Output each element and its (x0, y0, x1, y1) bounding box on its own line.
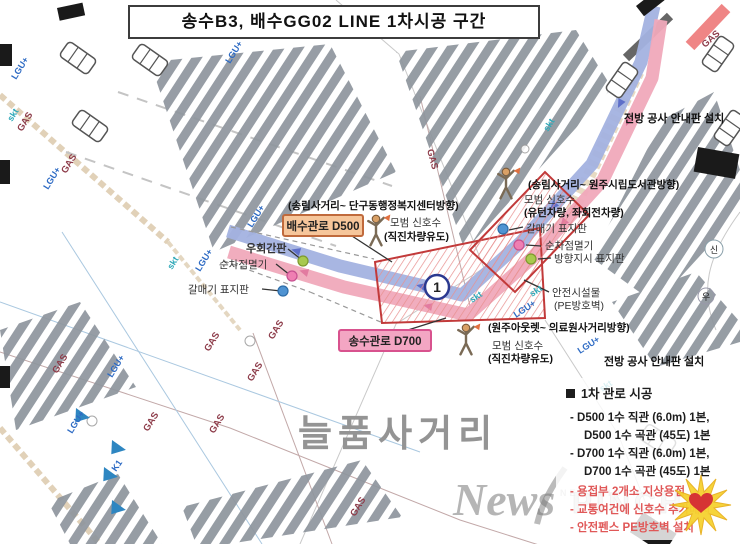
legend-header: 1차 관로 시공 (581, 386, 653, 401)
legend-square-icon (566, 389, 575, 398)
intersection-name: 늘품사거리 (298, 413, 498, 454)
flagger-right-sub: (유턴차량, 좌회전차량) (524, 206, 624, 219)
svg-text:LGU+: LGU+ (65, 409, 86, 435)
flagger-center-sub: (직진차량유도) (384, 230, 449, 243)
svg-text:GAS: GAS (202, 330, 222, 353)
legend-item-red: - 안전펜스 PE방호벽 설치 (570, 520, 694, 534)
svg-text:LGU+: LGU+ (9, 55, 30, 81)
k1-tag: K1 (109, 458, 124, 473)
flasher-left-label: 순차점멸기 (219, 259, 267, 271)
flagger-bottom-title: 모범 신호수 (492, 340, 544, 352)
legend-item: - D500 1수 직관 (6.0m) 1본, (570, 410, 709, 424)
drain-pipe-label: 배수관로 D500 (286, 219, 359, 233)
flasher-right-dot (514, 240, 524, 250)
notice-board-top-label: 전방 공사 안내판 설치 (624, 111, 724, 125)
direction-sign-right-label: 방향지시 표지판 (554, 253, 625, 265)
drawing-title: 송수B3, 배수GG02 LINE 1차시공 구간 (128, 5, 540, 39)
safety-facility-title: 안전시설물 (552, 287, 601, 299)
flagger-bottom-sub: (직진차량유도) (488, 352, 553, 365)
drain-pipe-label-box: 배수관로 D500 (283, 215, 363, 236)
direction-nw-label: (송림사거리~ 단구동행정복지센터방향) (288, 199, 459, 212)
signal-circle-label: 신 (710, 245, 718, 255)
zone-number-marker: 1 (425, 275, 449, 299)
legend-item: D700 1수 곡관 (45도) 1본 (584, 464, 711, 478)
flagger-center-title: 모범 신호수 (390, 217, 442, 229)
svg-text:GAS: GAS (141, 410, 161, 433)
svg-text:GAS: GAS (207, 412, 227, 435)
zone-number-label: 1 (433, 279, 441, 295)
svg-text:LGU+: LGU+ (193, 247, 214, 273)
svg-text:LGU+: LGU+ (41, 165, 62, 191)
supply-pipe-label-box: 송수관로 D700 (339, 330, 431, 351)
direction-sign-right-dot (526, 254, 536, 264)
seagull-right-label: 갈매기 표지판 (526, 222, 587, 235)
construction-plan-page: 신 우 배수관로 D500 송수관로 D700 (0, 0, 740, 544)
site-plan-drawing: 신 우 배수관로 D500 송수관로 D700 (0, 0, 740, 544)
svg-text:GAS: GAS (266, 318, 286, 341)
flasher-left-dot (287, 271, 297, 281)
flasher-right-label: 순차점멸기 (545, 240, 593, 252)
supply-pipe-label: 송수관로 D700 (348, 334, 421, 348)
direction-s-label: (원주아웃렛~ 의료원사거리방향) (488, 321, 630, 334)
detour-sign-dot (298, 256, 308, 266)
notice-board-bottom-label: 전방 공사 안내판 설치 (604, 354, 704, 368)
legend-item: - D700 1수 직관 (6.0m) 1본, (570, 446, 709, 460)
direction-ne-label: (송림사거리~ 원주시립도서관방향) (528, 178, 679, 191)
seagull-right-dot (498, 224, 508, 234)
detour-sign-label: 우회간판 (246, 241, 286, 255)
legend-item-red: - 용접부 2개소 지상용접 (570, 484, 685, 498)
svg-text:LGU+: LGU+ (576, 334, 602, 356)
seagull-left-label: 갈매기 표지판 (188, 283, 249, 296)
flagger-bottom-icon (458, 324, 480, 355)
safety-facility-sub: (PE방호벽) (554, 300, 604, 312)
seagull-left-dot (278, 286, 288, 296)
svg-text:GAS: GAS (245, 360, 265, 383)
legend-item: D500 1수 곡관 (45도) 1본 (584, 428, 711, 442)
flagger-right-title: 모범 신호수 (524, 194, 576, 206)
uturn-symbol-label: 우 (702, 292, 710, 302)
